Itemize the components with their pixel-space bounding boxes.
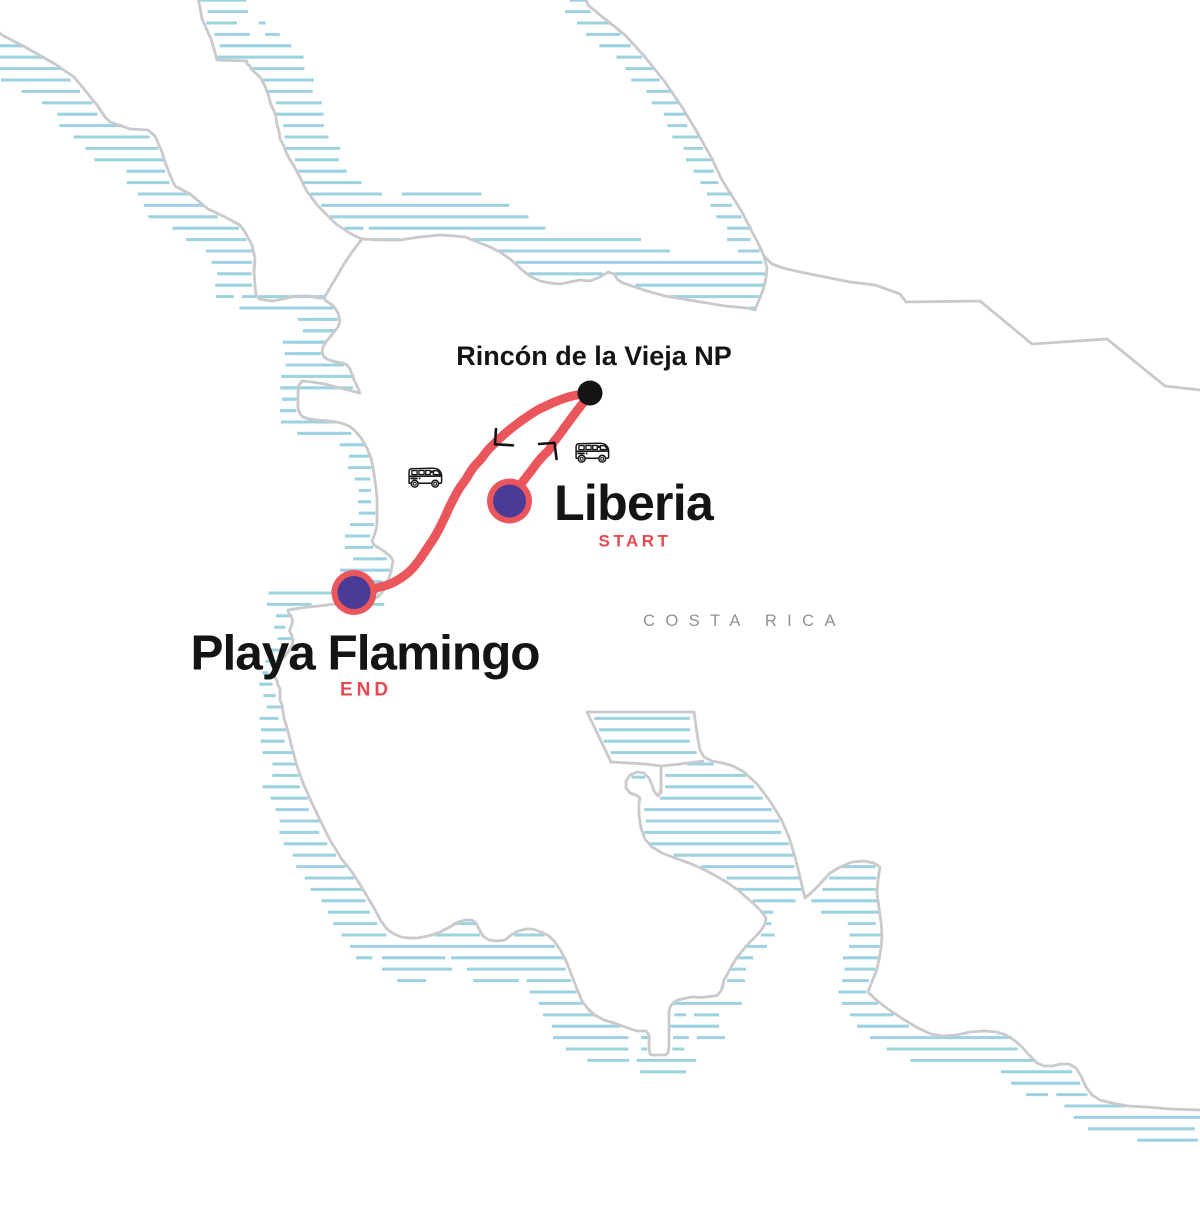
svg-text:START: START (599, 532, 672, 551)
svg-text:COSTA RICA: COSTA RICA (643, 612, 846, 630)
svg-text:Rincón de la Vieja NP: Rincón de la Vieja NP (456, 341, 732, 371)
svg-text:END: END (340, 680, 392, 701)
svg-text:Liberia: Liberia (554, 475, 715, 531)
svg-text:Playa Flamingo: Playa Flamingo (190, 626, 539, 681)
